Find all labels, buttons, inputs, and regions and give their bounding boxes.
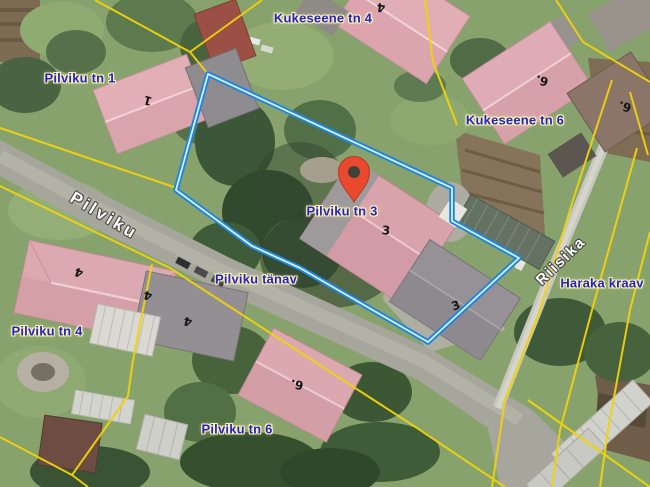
address-label-pilviku-tn-4: Pilviku tn 4 (11, 324, 82, 339)
address-label-kukeseene-tn-4: Kukeseene tn 4 (274, 11, 372, 26)
address-label-pilviku-tn-1: Pilviku tn 1 (44, 71, 115, 86)
address-label-pilviku-tn-6: Pilviku tn 6 (201, 422, 272, 437)
house-number: 6. (289, 376, 304, 392)
address-label-pilviku-tanav: Pilviku tänav (215, 272, 297, 287)
house-number: 4 (376, 0, 386, 15)
address-label-kukeseene-tn-6: Kukeseene tn 6 (466, 113, 564, 128)
address-label-haraka-kraav: Haraka kraav (560, 276, 643, 291)
map-canvas[interactable]: 4 1 6. 6. 3 3 4 4 4 6. Pilviku Riisika K… (0, 0, 650, 487)
address-label-pilviku-tn-3: Pilviku tn 3 (306, 204, 377, 219)
house-number: 3 (381, 223, 391, 238)
